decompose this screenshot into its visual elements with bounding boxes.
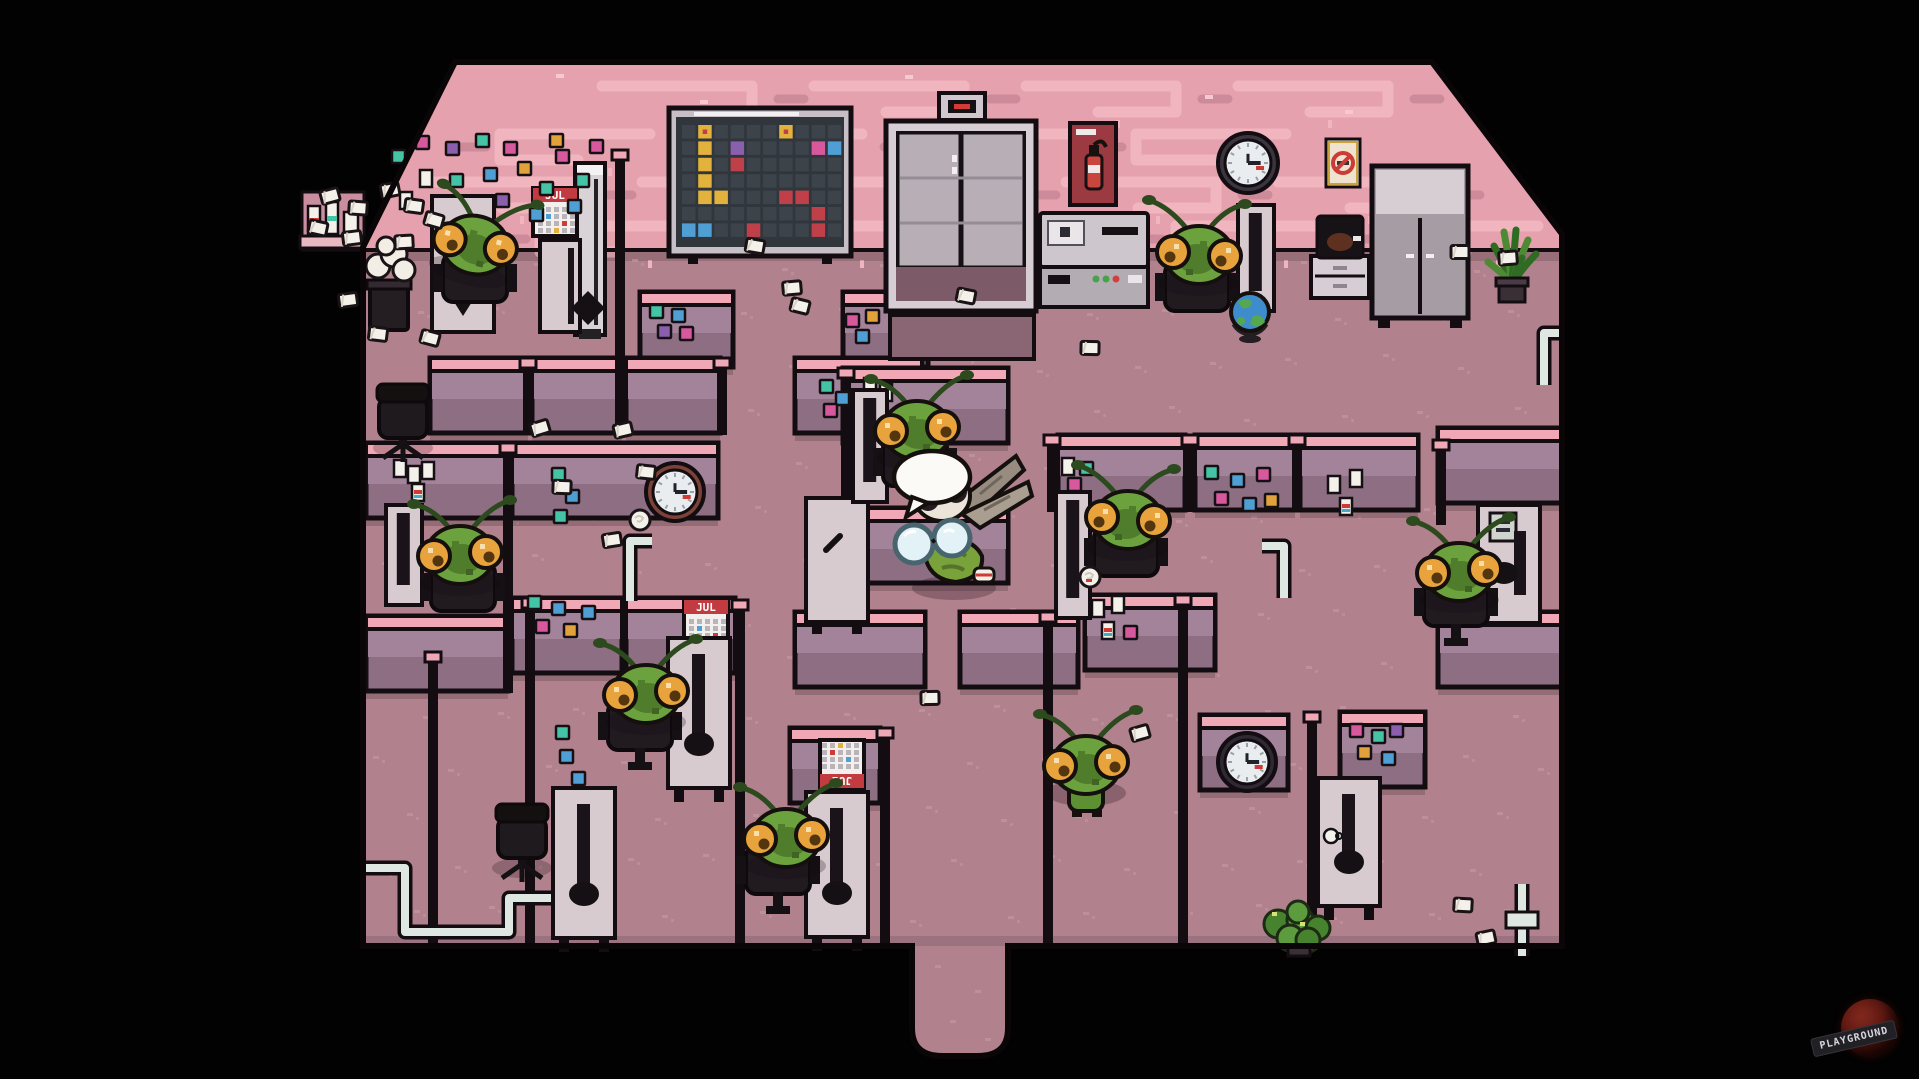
game-viewport[interactable]: JULJULJUL bbox=[0, 0, 1919, 1079]
coffee-station bbox=[1311, 216, 1369, 298]
fire-extinguisher-poster bbox=[1070, 123, 1116, 205]
empty-office-chair[interactable] bbox=[373, 384, 433, 462]
playground-logo: PLAYGROUND bbox=[1809, 997, 1909, 1071]
cubicle-wall bbox=[626, 358, 720, 441]
cubicle-desk bbox=[1318, 778, 1380, 920]
no-smoking-sign bbox=[1326, 139, 1360, 187]
wall-clock bbox=[1218, 733, 1276, 791]
crumpled-paper bbox=[1080, 567, 1100, 587]
svg-text:JUL: JUL bbox=[696, 601, 716, 614]
cubicle-desk bbox=[806, 498, 868, 634]
empty-office-chair[interactable] bbox=[492, 804, 552, 882]
cubicle-wall bbox=[1438, 428, 1562, 511]
game-screen: { "watermark": { "text": "PLAYGROUND" },… bbox=[0, 0, 1919, 1079]
pipe-coupling bbox=[1506, 912, 1538, 928]
cubicle-wall bbox=[430, 358, 528, 441]
cubicle-wall bbox=[960, 612, 1078, 695]
crumpled-paper bbox=[630, 510, 650, 530]
elevator[interactable] bbox=[886, 93, 1036, 359]
cubicle-desk bbox=[553, 788, 615, 952]
wall-clock bbox=[1218, 133, 1278, 193]
copier-machine bbox=[1040, 213, 1148, 307]
